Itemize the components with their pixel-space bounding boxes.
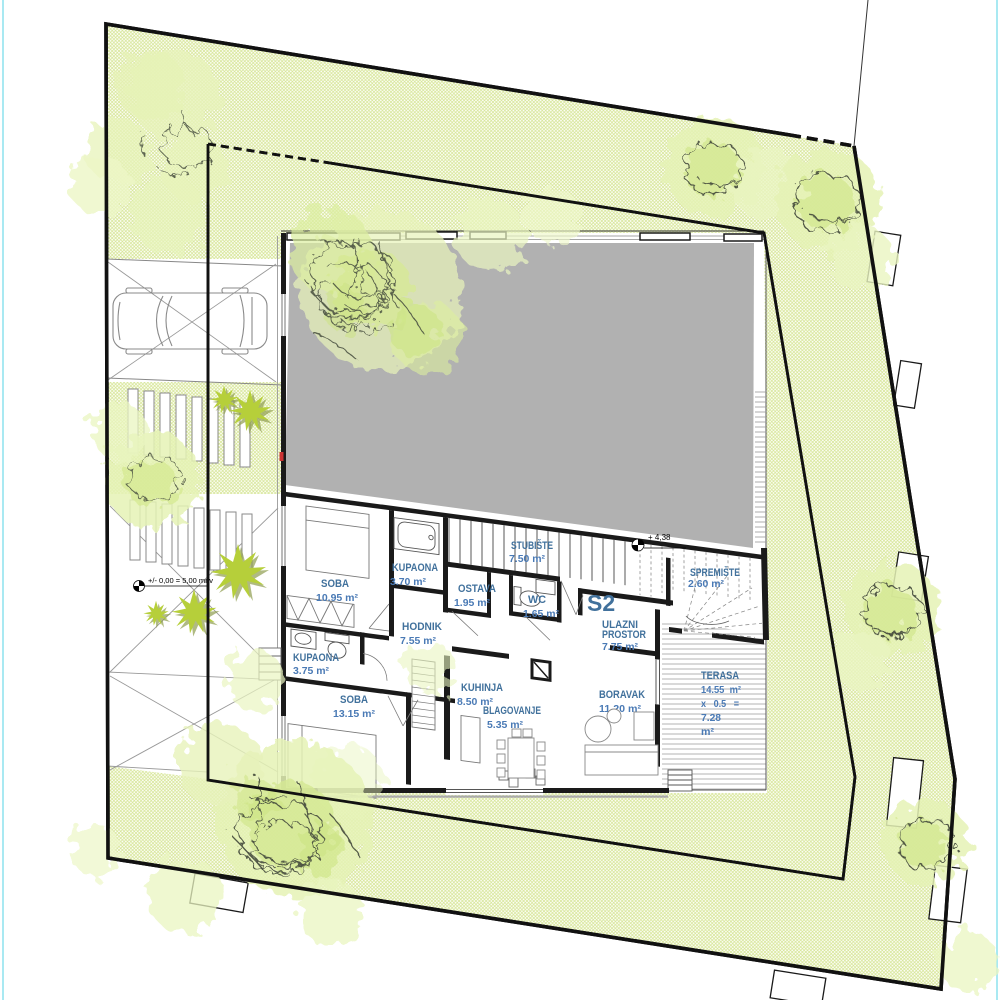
svg-text:KUHINJA: KUHINJA (461, 682, 503, 694)
svg-text:1.95 m²: 1.95 m² (454, 598, 491, 609)
svg-text:1.65 m²: 1.65 m² (523, 609, 560, 620)
svg-text:2.60 m²: 2.60 m² (688, 579, 725, 590)
svg-text:WC: WC (528, 594, 546, 606)
svg-text:+/- 0,00 = 5,00 mnv: +/- 0,00 = 5,00 mnv (148, 576, 213, 585)
svg-text:13.15 m²: 13.15 m² (333, 709, 376, 720)
svg-text:S2: S2 (587, 590, 615, 616)
svg-text:TERASA: TERASA (701, 670, 739, 682)
svg-text:3.70 m²: 3.70 m² (390, 577, 427, 588)
svg-text:STUBIŠTE: STUBIŠTE (511, 539, 553, 552)
svg-text:7.50 m²: 7.50 m² (509, 554, 546, 565)
svg-text:SPREMIŠTE: SPREMIŠTE (690, 566, 740, 579)
svg-text:BLAGOVANJE: BLAGOVANJE (483, 705, 541, 717)
svg-text:KUPAONA: KUPAONA (392, 562, 438, 574)
svg-text:14.55 m²: 14.55 m² (701, 685, 742, 696)
svg-text:m²: m² (701, 727, 715, 738)
svg-text:OSTAVA: OSTAVA (458, 583, 496, 595)
svg-text:HODNIK: HODNIK (402, 621, 442, 633)
svg-text:BORAVAK: BORAVAK (599, 689, 645, 701)
svg-text:3.75 m²: 3.75 m² (293, 666, 330, 677)
svg-text:10.95 m²: 10.95 m² (316, 593, 359, 604)
svg-text:+ 4,38: + 4,38 (648, 533, 671, 542)
svg-text:SOBA: SOBA (321, 578, 349, 590)
svg-text:7.75 m²: 7.75 m² (602, 642, 639, 653)
svg-text:KUPAONA: KUPAONA (293, 652, 339, 664)
svg-text:7.28: 7.28 (701, 713, 721, 724)
svg-text:PROSTOR: PROSTOR (602, 629, 646, 641)
svg-text:x 0.5 =: x 0.5 = (701, 699, 739, 710)
svg-text:SOBA: SOBA (340, 694, 368, 706)
